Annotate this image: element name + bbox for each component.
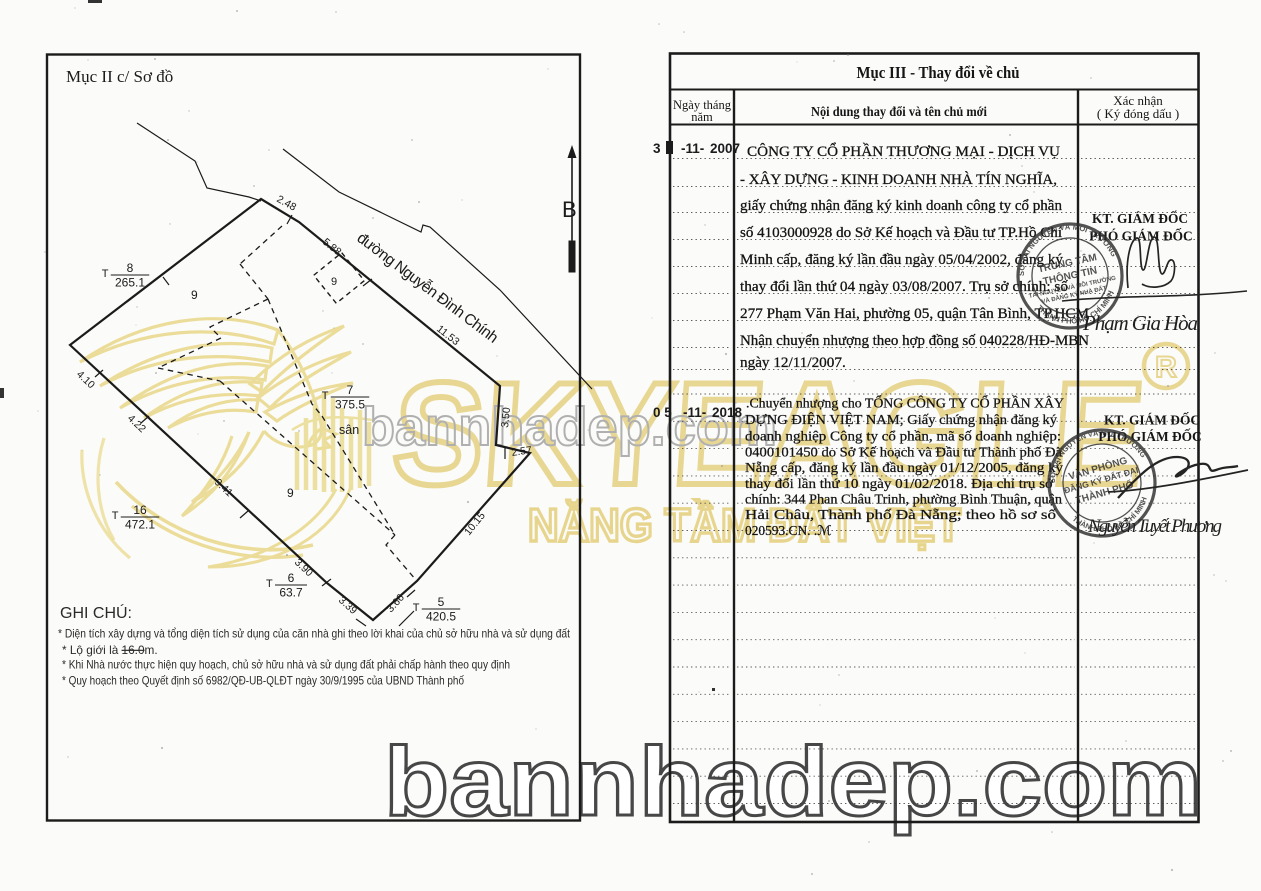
svg-text:KT. GIÁM ĐỐC: KT. GIÁM ĐỐC — [1104, 413, 1200, 428]
svg-text:năm: năm — [691, 110, 713, 124]
svg-text:sân: sân — [339, 423, 359, 437]
svg-text:.Chuyển nhượng cho TỔNG CÔNG T: .Chuyển nhượng cho TỔNG CÔNG TY CỔ PHẦN … — [746, 396, 1064, 411]
svg-text:T: T — [102, 268, 109, 280]
svg-text:8: 8 — [127, 261, 134, 275]
svg-text:giấy chứng nhận đăng ký kinh d: giấy chứng nhận đăng ký kinh doanh công … — [740, 197, 1062, 214]
svg-text:KT. GIÁM ĐỐC: KT. GIÁM ĐỐC — [1092, 211, 1188, 226]
svg-text:T: T — [413, 602, 420, 614]
svg-text:6: 6 — [288, 571, 295, 585]
svg-text:-11-: -11- — [681, 141, 704, 156]
svg-text:* Lộ giới là 16.0m.: * Lộ giới là 16.0m. — [62, 643, 158, 657]
svg-text:B: B — [562, 197, 577, 222]
svg-text:2018: 2018 — [712, 405, 743, 420]
svg-text:* Quy hoạch theo Quyết định số: * Quy hoạch theo Quyết định số 6982/QĐ-U… — [62, 674, 464, 688]
svg-text:( Ký đóng dấu ): ( Ký đóng dấu ) — [1097, 106, 1179, 121]
svg-text:T: T — [266, 578, 273, 590]
svg-text:375.5: 375.5 — [335, 398, 365, 412]
svg-text:GHI CHÚ:: GHI CHÚ: — [60, 603, 132, 622]
svg-text:2007: 2007 — [710, 141, 740, 156]
svg-text:DỰNG ĐIỆN VIỆT NAM; Giấy chứng: DỰNG ĐIỆN VIỆT NAM; Giấy chứng nhận đăng… — [745, 412, 1057, 427]
svg-text:63.7: 63.7 — [279, 586, 303, 600]
svg-text:Nhận chuyển nhượng theo hợp đồ: Nhận chuyển nhượng theo hợp đồng số 0402… — [740, 332, 1089, 349]
svg-text:Nẵng cấp, đăng ký lần đầu ngày: Nẵng cấp, đăng ký lần đầu ngày 01/12/200… — [745, 460, 1063, 475]
svg-text:265.1: 265.1 — [115, 276, 145, 290]
svg-text:9: 9 — [191, 288, 198, 302]
svg-text:số 4103000928 do Sở Kế hoạch v: số 4103000928 do Sở Kế hoạch và Đầu tư T… — [740, 224, 1063, 241]
svg-text:0 5: 0 5 — [653, 405, 672, 420]
svg-text:ngày 12/11/2007.: ngày 12/11/2007. — [740, 354, 846, 371]
svg-text:277 Phạm Văn Hai, phường 05, q: 277 Phạm Văn Hai, phường 05, quận Tân Bì… — [740, 305, 1089, 322]
svg-text:* Khi Nhà nước thực hiện quy h: * Khi Nhà nước thực hiện quy hoạch, chủ … — [62, 658, 510, 672]
svg-text:Nguyễn Tuyết Phương: Nguyễn Tuyết Phương — [1087, 516, 1222, 537]
svg-text:7: 7 — [347, 383, 354, 397]
svg-text:R: R — [1155, 351, 1177, 384]
svg-text:16: 16 — [133, 503, 147, 517]
svg-text:3.50: 3.50 — [499, 407, 513, 429]
svg-text:9: 9 — [331, 276, 337, 288]
svg-text:020593.CN. .ℳ: 020593.CN. .ℳ — [745, 523, 831, 538]
svg-text:CÔNG TY CỔ PHẦN THƯƠNG MẠI - D: CÔNG TY CỔ PHẦN THƯƠNG MẠI - DỊCH VỤ — [747, 142, 1060, 160]
svg-text:Nội dung thay đổi và tên chủ m: Nội dung thay đổi và tên chủ mới — [811, 104, 987, 119]
svg-text:T: T — [112, 510, 119, 522]
svg-text:Mục II c/ Sơ đồ: Mục II c/ Sơ đồ — [66, 67, 173, 86]
svg-text:doanh nghiệp Công ty cổ phần,: doanh nghiệp Công ty cổ phần, mã số doan… — [745, 429, 1061, 444]
svg-text:5: 5 — [438, 595, 445, 609]
svg-text:* Diện tích xây dựng và tổng d: * Diện tích xây dựng và tổng diện tích s… — [58, 627, 571, 641]
svg-text:420.5: 420.5 — [426, 610, 456, 624]
svg-text:T: T — [322, 390, 329, 402]
svg-text:- XÂY DỰNG - KINH DOANH NHÀ TÍ: - XÂY DỰNG - KINH DOANH NHÀ TÍN NGHĨA, — [740, 171, 1057, 188]
svg-text:3: 3 — [653, 141, 661, 156]
svg-text:-11-: -11- — [683, 405, 706, 420]
svg-text:Phạm Gia Hòa: Phạm Gia Hòa — [1082, 311, 1198, 335]
svg-text:472.1: 472.1 — [125, 518, 155, 532]
svg-text:Minh cấp, đăng ký lần đầu ngày: Minh cấp, đăng ký lần đầu ngày 05/04/200… — [740, 251, 1063, 268]
svg-text:9: 9 — [287, 486, 294, 500]
svg-text:thay đổi lần thứ 10 ngày 01/02: thay đổi lần thứ 10 ngày 01/02/2018. Địa… — [745, 476, 1054, 491]
svg-text:Hải Châu, Thành phố Đà Nẵng; t: Hải Châu, Thành phố Đà Nẵng; theo hồ sơ … — [745, 507, 1056, 522]
svg-text:chính: 344 Phan Châu Trinh, ph: chính: 344 Phan Châu Trinh, phường Bình … — [745, 492, 1062, 507]
svg-text:0400101450 do Sở Kế hoạch và Đ: 0400101450 do Sở Kế hoạch và Đầu tư Thàn… — [745, 445, 1062, 460]
svg-text:Mục III - Thay đổi về chủ: Mục III - Thay đổi về chủ — [857, 63, 1020, 82]
